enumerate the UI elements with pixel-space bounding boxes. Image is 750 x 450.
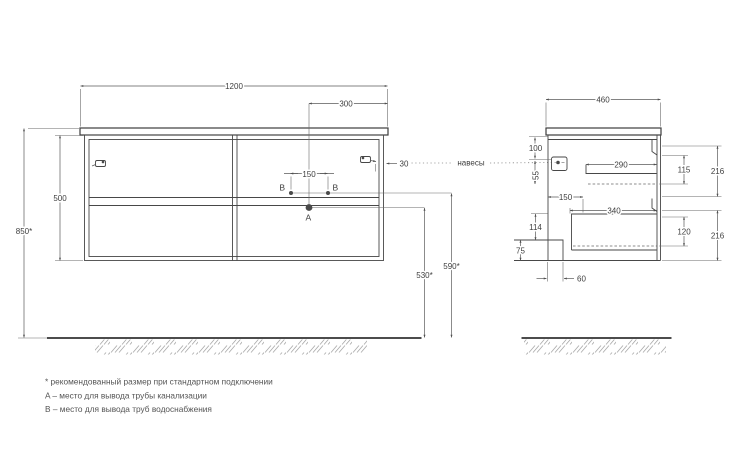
floor: [18, 338, 672, 355]
connection-points: B B A: [279, 183, 451, 223]
front-hanger-left-icon: [92, 161, 106, 167]
bottom-gap-label: 114: [529, 223, 542, 232]
hanger-top-offset-label: 100: [529, 144, 543, 153]
side-countertop: [546, 128, 661, 135]
dim-cabinet-height: 500: [53, 136, 83, 261]
front-cabinet: [80, 128, 388, 261]
total-height-label: 850*: [16, 227, 32, 236]
dim-upper-section-height: 216: [711, 146, 725, 197]
front-drawer-split: [89, 198, 379, 206]
front-countertop: [80, 128, 388, 135]
point-b-right: [326, 191, 330, 195]
note-recommended-size: * рекомендованный размер при стандартном…: [45, 377, 273, 387]
drawing-canvas: 1200 300 150 B B A: [0, 0, 750, 450]
b-floor-height-label: 590*: [443, 262, 459, 271]
lower-drawer-width-label: 340: [607, 206, 621, 215]
dim-front-offset: 150: [548, 193, 583, 213]
recess-width-label: 60: [577, 274, 586, 283]
point-a: [306, 204, 313, 211]
side-hanger-icon: [552, 157, 568, 171]
hanger-drop-label: 55: [532, 171, 541, 180]
note-point-a: A – место для вывода трубы канализации: [45, 391, 207, 401]
a-floor-height-label: 530*: [416, 271, 432, 280]
dim-hanger-drop: 55: [532, 161, 541, 184]
point-b-left-label: B: [279, 183, 285, 193]
upper-drawer-width-label: 290: [614, 160, 628, 169]
dim-bottom-gap: 114: [529, 214, 547, 241]
dim-plinth-height: 75: [516, 240, 525, 261]
upper-drawer-inner-height-label: 115: [678, 166, 691, 175]
b-spacing-label: 150: [302, 170, 316, 179]
dim-total-height: 850*: [16, 129, 79, 338]
side-lower-drawer: [572, 214, 657, 250]
note-point-b: B – место для вывода труб водоснабжения: [45, 404, 212, 414]
floor-hatching-side: [524, 340, 666, 355]
point-b-right-label: B: [333, 183, 339, 193]
notes: * рекомендованный размер при стандартном…: [45, 377, 273, 415]
dim-lower-drawer-inner-height: 120: [677, 217, 691, 246]
floor-hatching-front: [95, 340, 367, 355]
dim-recess-width: 60: [537, 262, 587, 283]
front-width-label: 1200: [225, 82, 243, 91]
lower-drawer-inner-height-label: 120: [677, 227, 691, 236]
front-inner-frame: [89, 140, 379, 257]
front-offset-label: 150: [559, 193, 573, 202]
lower-section-height-label: 216: [711, 231, 725, 240]
side-right-extensions: [659, 146, 722, 261]
dim-upper-drawer-inner-height: 115: [678, 156, 691, 185]
point-a-label: A: [306, 213, 312, 223]
dim-center-to-edge: 300: [309, 99, 388, 108]
upper-section-height-label: 216: [711, 167, 725, 176]
hanger-inset-label: 30: [400, 159, 409, 168]
plinth-height-label: 75: [516, 246, 525, 255]
dim-lower-section-height: 216: [711, 211, 725, 261]
hangers-callout: 30 навесы: [387, 159, 557, 169]
point-b-left: [289, 191, 293, 195]
cabinet-height-label: 500: [53, 194, 67, 203]
side-view: 460 100 55 150 290 340: [514, 95, 725, 283]
dim-upper-drawer-width: 290: [586, 160, 657, 169]
depth-label: 460: [596, 95, 610, 104]
center-to-edge-label: 300: [339, 99, 353, 108]
front-hanger-right-icon: [361, 157, 377, 172]
dim-a-floor-height: 530*: [416, 208, 432, 338]
side-hanger-cutouts: [652, 140, 657, 212]
hangers-label: навесы: [457, 159, 484, 168]
vanity-dimension-drawing: 1200 300 150 B B A: [0, 0, 750, 450]
dim-depth: 460: [546, 95, 661, 126]
front-view: 1200 300 150 B B A: [16, 82, 460, 338]
dim-b-floor-height: 590*: [443, 194, 459, 338]
